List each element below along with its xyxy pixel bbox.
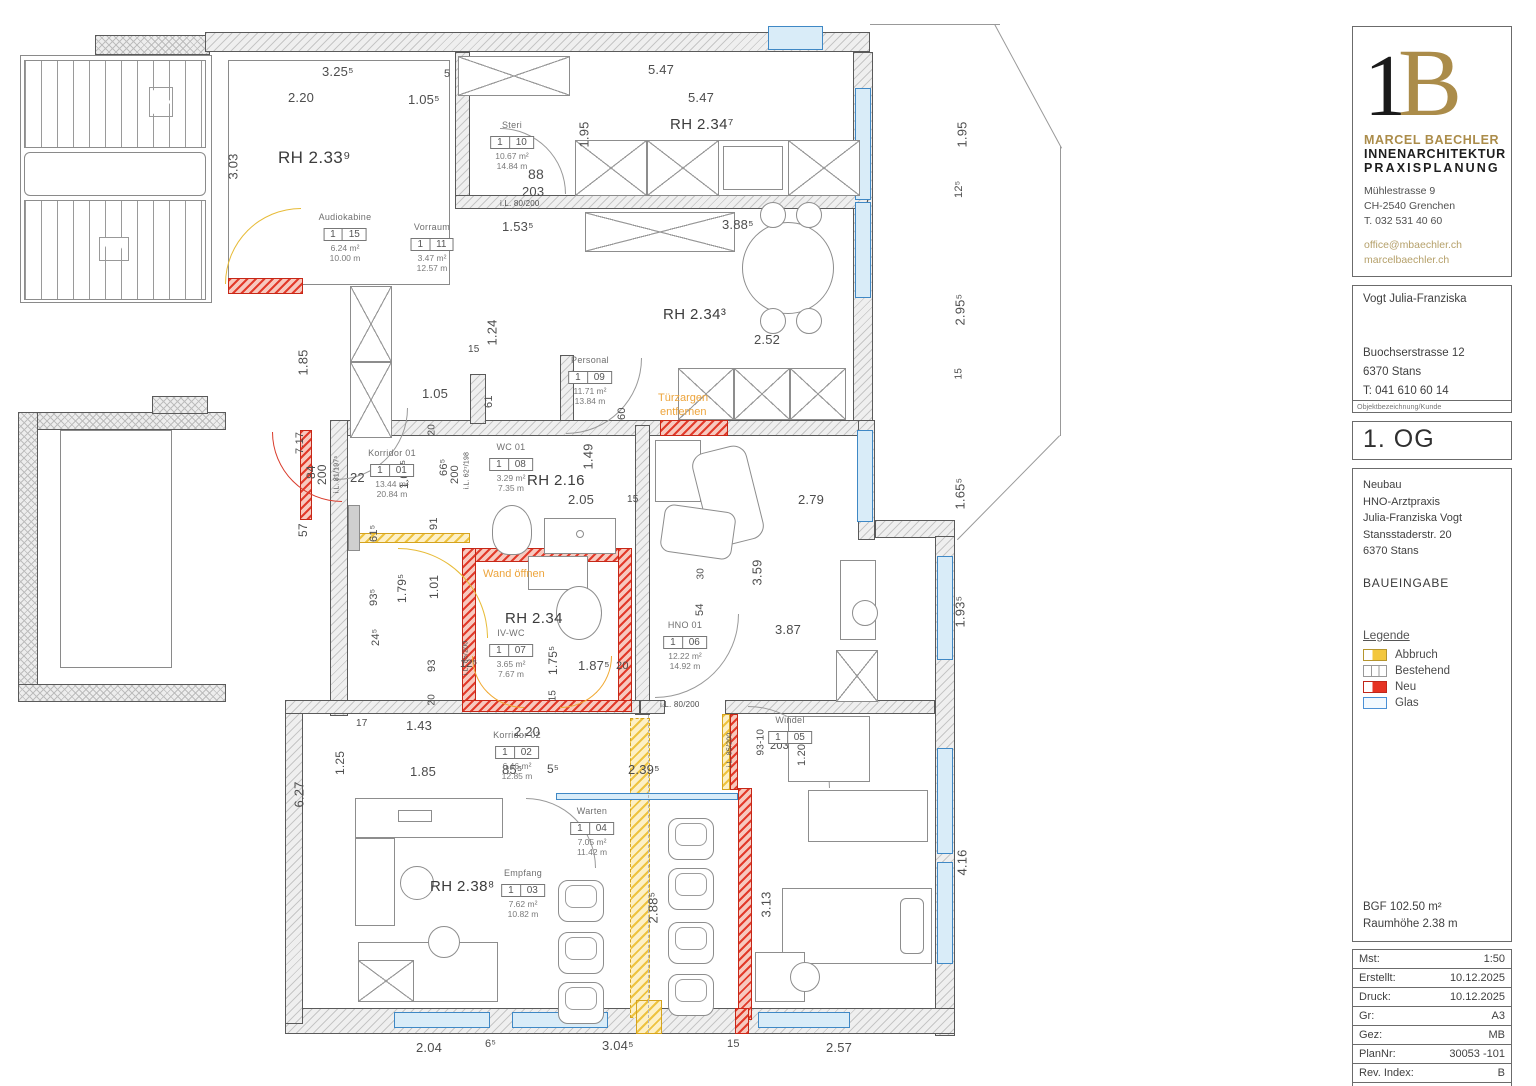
client-caption: Objektbezeichnung/Kunde (1353, 400, 1511, 412)
glass-window (857, 430, 873, 522)
room-label: WC 011083.29 m²7.35 m (489, 442, 533, 493)
room-label: Steri11010.67 m²14.84 m (490, 120, 534, 171)
existing-wall (152, 396, 208, 414)
dimension-label: 2.95⁵ (953, 294, 968, 326)
room-height-label: RH 2.34³ (663, 306, 726, 323)
meta-value: A3 (1492, 1010, 1505, 1022)
office-chair (428, 926, 460, 958)
dimension-label: 2.20 (288, 90, 314, 105)
new-wall (660, 420, 728, 436)
dimension-label: 3.03 (226, 153, 241, 179)
room-label: IV-WC1073.65 m²7.67 m (489, 628, 533, 679)
dimension-label: 3.25⁵ (322, 64, 354, 79)
meta-value: 10.12.2025 (1450, 991, 1505, 1003)
dimension-label: 20 (616, 660, 629, 672)
facade-line (1060, 146, 1061, 436)
waiting-chair (668, 974, 714, 1016)
dimension-label: 1.75⁵ (546, 646, 560, 675)
project-lines: NeubauHNO-ArztpraxisJulia-Franziska Vogt… (1363, 477, 1501, 560)
client-street: Buochserstrasse 12 (1363, 344, 1501, 363)
dimension-label: i.L. 81/197⁵ (334, 456, 341, 494)
legend-label: Glas (1395, 697, 1419, 709)
meta-value: MB (1489, 1029, 1506, 1041)
cabinet (585, 212, 735, 252)
legend-item: Bestehend (1363, 665, 1501, 677)
cabinet (836, 650, 878, 702)
dimension-label: 91 (428, 517, 440, 530)
dimension-label: 200 (315, 464, 329, 485)
meta-value: 10.12.2025 (1450, 972, 1505, 984)
dimension-label: 200 (449, 465, 461, 484)
dimension-label: 1.85 (296, 349, 311, 375)
room-label: Korridor 0110113.44 m²20.84 m (368, 448, 416, 499)
legend-swatch-abbruch (1363, 649, 1387, 661)
dimension-label: 93-10 (756, 729, 767, 756)
room-height-label: RH 2.16 (527, 472, 585, 489)
meta-table: Mst:1:50Erstellt:10.12.2025Druck:10.12.2… (1352, 949, 1512, 1086)
dimension-label: 1.01 (427, 575, 441, 599)
monitor (398, 810, 432, 822)
waiting-chair (668, 922, 714, 964)
glass-window (937, 862, 953, 964)
dimension-label: i.L. 80/200 (660, 700, 700, 709)
dimension-label: 15 (727, 1038, 740, 1050)
dimension-label: 2.88⁵ (646, 892, 661, 924)
text-line: marcelbaechler.ch (1364, 253, 1500, 268)
facade-line (994, 24, 1062, 149)
dimension-label: 3.13 (759, 891, 774, 917)
legend-item: Abbruch (1363, 649, 1501, 661)
revision-note: Wand öffnen (483, 568, 545, 580)
dimension-label: 1.05 (422, 386, 448, 401)
text-line: Julia-Franziska Vogt (1363, 510, 1501, 527)
architect-links[interactable]: office@mbaechler.chmarcelbaechler.ch (1364, 238, 1500, 268)
meta-row: Mst:1:50 (1352, 949, 1512, 969)
dimension-label: 3.87 (775, 622, 801, 637)
meta-label: Mst: (1359, 953, 1380, 965)
meta-row: Seite:1/1 (1352, 1082, 1512, 1086)
work-desk (840, 560, 876, 640)
dimension-label: 5 (444, 68, 450, 80)
legend-swatch-glas (1363, 697, 1387, 709)
chair-round (796, 202, 822, 228)
office-chair (790, 962, 820, 992)
glass-window (937, 556, 953, 660)
legend-item: Glas (1363, 697, 1501, 709)
meta-label: Rev. Index: (1359, 1067, 1414, 1079)
room-label: HNO 0110612.22 m²14.92 m (663, 620, 707, 671)
dimension-label: 54 (694, 603, 706, 616)
glass-partition (556, 793, 738, 800)
legend-label: Bestehend (1395, 665, 1450, 677)
room-label: Empfang1037.62 m²10.82 m (501, 868, 545, 919)
logo: 1B (1364, 35, 1500, 131)
dimension-label: 1.53⁵ (502, 219, 534, 234)
room-height-label: RH 2.38⁸ (430, 878, 495, 895)
project-block: NeubauHNO-ArztpraxisJulia-Franziska Vogt… (1352, 468, 1512, 942)
legend-items: AbbruchBestehendNeuGlas (1363, 649, 1501, 713)
dimension-label: 1.65⁵ (953, 478, 968, 510)
dimension-label: 1.95 (955, 121, 970, 147)
dimension-label: 2.05 (568, 492, 594, 507)
waiting-chair (668, 868, 714, 910)
legend-label: Abbruch (1395, 649, 1438, 661)
stair-flight (24, 60, 206, 148)
dimension-label: 15 (468, 344, 480, 355)
waiting-chair (558, 880, 604, 922)
new-wall (618, 548, 632, 712)
dimension-label: 60 (616, 407, 628, 420)
dimension-label: 6⁵ (485, 1038, 496, 1050)
room-label: Warten1047.05 m²11.42 m (570, 806, 614, 857)
dimension-label: 1.93⁵ (953, 596, 968, 628)
glass-window (855, 202, 871, 298)
dimension-label: 5⁵ (547, 762, 559, 776)
meta-row: Druck:10.12.2025 (1352, 987, 1512, 1007)
dimension-label: 4.16 (955, 849, 970, 875)
dimension-label: i.L. 62⁷/198 (464, 452, 471, 490)
architect-block: 1B MARCEL BAECHLER INNENARCHITEKTUR PRAX… (1352, 26, 1512, 277)
floor-title: 1. OG (1363, 425, 1501, 454)
architect-address: Mühlestrasse 9CH-2540 GrenchenT. 032 531… (1364, 184, 1500, 229)
dimension-label: 2.04 (416, 1040, 442, 1055)
text-line: Mühlestrasse 9 (1364, 184, 1500, 199)
cabinet (575, 140, 647, 196)
legend-swatch-neu (1363, 681, 1387, 693)
room-label: Korridor 021026.46 m²12.85 m (493, 730, 541, 781)
dimension-label: 1.49 (581, 443, 596, 469)
meta-label: PlanNr: (1359, 1048, 1396, 1060)
glass-window (758, 1012, 850, 1028)
dimension-label: 17 (356, 718, 368, 729)
existing-wall (95, 35, 210, 55)
glass-window (394, 1012, 490, 1028)
waiting-chair (558, 932, 604, 974)
legend-label: Neu (1395, 681, 1416, 693)
dimension-label: 93⁵ (368, 589, 380, 606)
cabinet (647, 140, 719, 196)
office-chair (400, 866, 434, 900)
dimension-label: 2.39⁵ (628, 762, 660, 777)
brand-subtitle: INNENARCHITEKTUR (1364, 147, 1500, 161)
meta-label: Gr: (1359, 1010, 1374, 1022)
stool (852, 600, 878, 626)
sheet: Audiokabine1156.24 m²10.00 mVorraum1113.… (0, 0, 1536, 1086)
meta-row: Erstellt:10.12.2025 (1352, 968, 1512, 988)
dimension-label: 20 (427, 694, 438, 706)
dimension-label: 3.04⁵ (602, 1038, 634, 1053)
waiting-chair (668, 818, 714, 860)
dimension-label: 1.25 (333, 751, 347, 775)
chair-round (760, 308, 786, 334)
legend-swatch-bestehend (1363, 665, 1387, 677)
dimension-label: 1.95 (577, 121, 592, 147)
dimension-label: 2.79 (798, 492, 824, 507)
dimension-label: 5.47 (648, 62, 674, 77)
existing-wall (18, 684, 226, 702)
client-block: Vogt Julia-Franziska Buochserstrasse 12 … (1352, 285, 1512, 413)
demolition-wall (636, 1000, 662, 1034)
pillow (900, 898, 924, 954)
legend-item: Neu (1363, 681, 1501, 693)
room-height-label: RH 2.34 (505, 610, 563, 627)
legend-title: Legende (1363, 628, 1501, 642)
text-line: office@mbaechler.ch (1364, 238, 1500, 253)
new-wall (735, 1008, 749, 1034)
text-line: CH-2540 Grenchen (1364, 199, 1500, 214)
new-wall (738, 788, 752, 1020)
text-line: Raumhöhe 2.38 m (1363, 916, 1501, 933)
floor-block: 1. OG (1352, 421, 1512, 460)
room-label: Personal10911.71 m²13.84 m (568, 355, 612, 406)
plan-stats: BGF 102.50 m²Raumhöhe 2.38 m (1363, 899, 1501, 933)
existing-wall (18, 412, 226, 430)
door-leaf (348, 505, 360, 551)
dimension-label: 20 (427, 424, 438, 436)
meta-value: 30053 -101 (1449, 1048, 1505, 1060)
existing-wall (285, 1008, 955, 1034)
text-line: BGF 102.50 m² (1363, 899, 1501, 916)
neighbour-room-outline (60, 430, 172, 668)
project-stage: BAUEINGABE (1363, 576, 1501, 590)
room-height-label: RH 2.33⁹ (278, 148, 351, 168)
meta-row: PlanNr:30053 -101 (1352, 1044, 1512, 1064)
dimension-label: 3.88⁵ (722, 217, 754, 232)
meta-row: Gr:A3 (1352, 1006, 1512, 1026)
dimension-label: 22 (350, 470, 365, 485)
dimension-label: 2.57 (826, 1040, 852, 1055)
glass-window (937, 748, 953, 854)
dimension-label: 15 (954, 368, 965, 380)
dimension-label: 1.87⁵ (578, 658, 610, 673)
dimension-label: 12⁵ (953, 181, 965, 198)
dimension-label: 24⁵ (370, 629, 382, 646)
sink-unit (723, 146, 783, 190)
dimension-label: 203 (522, 184, 544, 199)
text-line: Neubau (1363, 477, 1501, 494)
floor-plan: Audiokabine1156.24 m²10.00 mVorraum1113.… (0, 0, 1340, 1086)
room-label: Vorraum1113.47 m²12.57 m (411, 222, 454, 273)
toilet (492, 505, 532, 555)
meta-value: B (1498, 1067, 1505, 1079)
meeting-table (742, 222, 834, 314)
meta-value: 1:50 (1484, 953, 1505, 965)
brand-subtitle-2: PRAXISPLANUNG (1364, 161, 1500, 175)
wardrobe (350, 362, 392, 438)
client-phone: T: 041 610 60 14 (1363, 382, 1501, 401)
facade-line (957, 435, 1060, 540)
dimension-label: 6.27 (292, 781, 307, 807)
dimension-label: 2.52 (754, 332, 780, 347)
client-address: Buochserstrasse 12 6370 Stans T: 041 610… (1363, 344, 1501, 401)
logo-monogram-b: B (1398, 29, 1462, 136)
revision-note: entfernen (660, 406, 706, 418)
dimension-label: 57 (296, 523, 310, 537)
room-label: Audiokabine1156.24 m²10.00 m (319, 212, 372, 263)
meta-row: Gez:MB (1352, 1025, 1512, 1045)
text-line: 6370 Stans (1363, 543, 1501, 560)
room-label: Windel105 (768, 715, 812, 746)
meta-label: Gez: (1359, 1029, 1382, 1041)
dimension-label: 1.85 (410, 764, 436, 779)
revision-note: Türzargen (658, 392, 708, 404)
dimension-label: 1.05⁵ (408, 92, 440, 107)
dimension-label: i.L. 85/200 (727, 733, 734, 768)
dimension-label: i.L. 80/200 (500, 199, 540, 208)
cabinet (358, 960, 414, 1002)
glass-window (768, 26, 823, 50)
title-block: 1B MARCEL BAECHLER INNENARCHITEKTUR PRAX… (1352, 26, 1512, 1086)
patient-chair (659, 503, 737, 561)
cabinet (734, 368, 790, 420)
dimension-label: 15 (548, 690, 559, 702)
cabinet (458, 56, 570, 96)
dimension-label: 1.43 (406, 718, 432, 733)
dimension-label: 1.79⁵ (395, 574, 409, 603)
reception-desk (355, 838, 395, 926)
text-line: HNO-Arztpraxis (1363, 494, 1501, 511)
text-line: Stansstaderstr. 20 (1363, 527, 1501, 544)
dimension-label: 1.20 (796, 744, 808, 766)
text-line: T. 032 531 40 60 (1364, 214, 1500, 229)
dimension-label: i.L. 85/200 (463, 641, 470, 676)
meta-label: Erstellt: (1359, 972, 1396, 984)
wardrobe (350, 286, 392, 362)
dimension-label: 1.24 (485, 319, 500, 345)
cabinet (790, 368, 846, 420)
dimension-label: 7.17 (294, 432, 306, 454)
dimension-label: 61 (483, 395, 495, 408)
stair-landing (24, 152, 206, 196)
couch (808, 790, 928, 842)
dimension-label: 30 (696, 568, 707, 580)
waiting-chair (558, 982, 604, 1024)
new-wall (462, 700, 632, 712)
meta-label: Druck: (1359, 991, 1391, 1003)
meta-row: Rev. Index:B (1352, 1063, 1512, 1083)
stair-direction-arrow (150, 88, 172, 116)
dimension-label: 61⁵ (368, 525, 380, 542)
dimension-label: 5.47 (688, 90, 714, 105)
stair-direction-arrow (100, 238, 128, 260)
brand-name: MARCEL BAECHLER (1364, 133, 1500, 147)
existing-wall (285, 700, 303, 1024)
existing-wall (635, 425, 650, 715)
dimension-label: 3.59 (750, 559, 765, 585)
facade-line (870, 24, 1000, 25)
dimension-label: 15 (627, 494, 639, 505)
client-city: 6370 Stans (1363, 363, 1501, 382)
toilet (556, 586, 602, 640)
chair-round (760, 202, 786, 228)
existing-wall (18, 412, 38, 702)
cabinet (788, 140, 860, 196)
room-height-label: RH 2.34⁷ (670, 116, 734, 133)
client-name: Vogt Julia-Franziska (1363, 293, 1501, 305)
faucet (576, 530, 584, 538)
dimension-label: 93 (426, 659, 438, 672)
chair-round (796, 308, 822, 334)
